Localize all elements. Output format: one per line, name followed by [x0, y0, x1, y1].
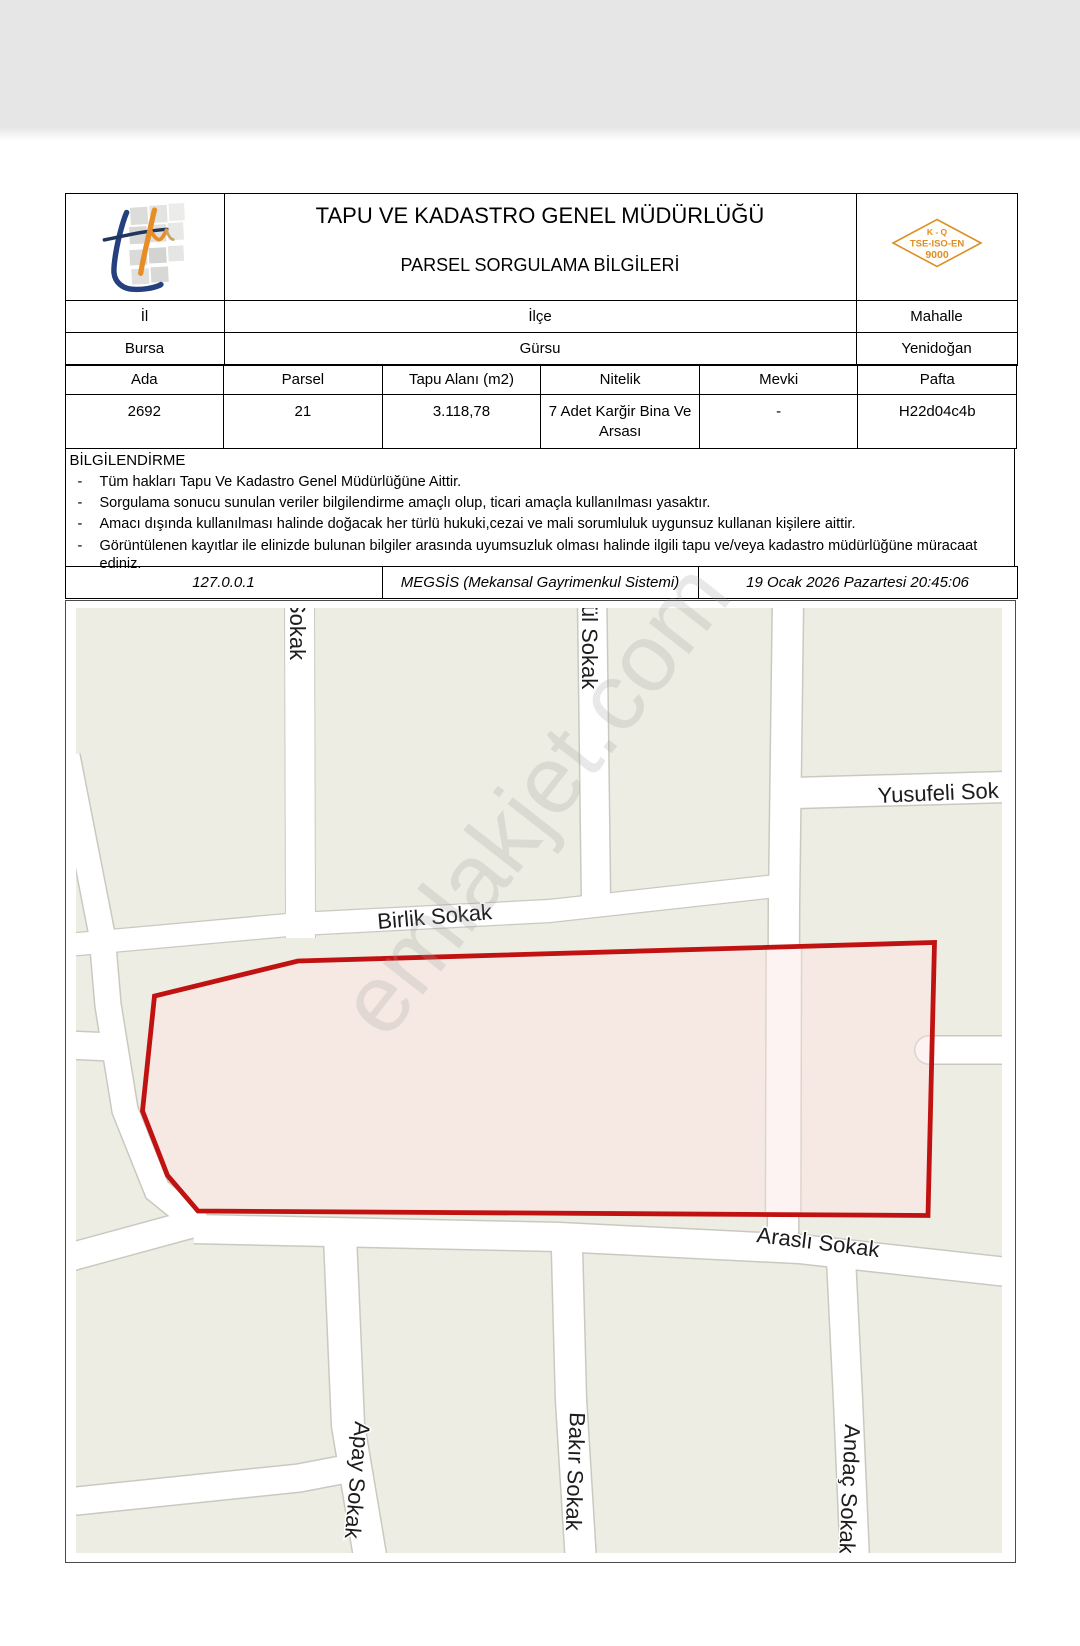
svg-text:9000: 9000	[925, 249, 949, 261]
svg-text:TSE-ISO-EN: TSE-ISO-EN	[909, 238, 964, 249]
svg-text:K - Q: K - Q	[926, 227, 947, 237]
svg-text:jül Sokak: jül Sokak	[577, 608, 602, 690]
svg-text:Yusufeli Sok: Yusufeli Sok	[877, 778, 1000, 808]
svg-text:Bakır Sokak: Bakır Sokak	[561, 1412, 590, 1532]
svg-text:Sokak: Sokak	[285, 608, 310, 661]
